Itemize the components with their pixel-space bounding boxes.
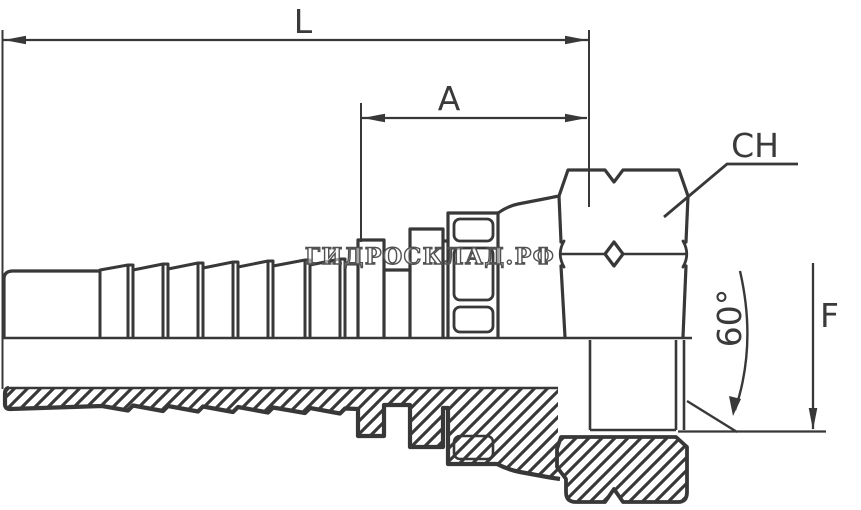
arrow-L-right — [565, 36, 587, 45]
nut-section-hatch — [557, 437, 687, 502]
label-F: F — [820, 296, 839, 335]
socket-block — [448, 213, 498, 337]
arrow-A-left — [363, 114, 385, 123]
arrow-F — [809, 408, 818, 430]
dimension-F: F — [678, 263, 839, 432]
label-L: L — [294, 2, 313, 41]
dimension-A: A — [361, 79, 587, 242]
technical-drawing: L A CH 60° F ГИДРОСКЛАД.РФ — [0, 0, 861, 510]
tail-pilot — [4, 271, 100, 337]
watermark-text: ГИДРОСКЛАД.РФ — [305, 244, 555, 270]
hex-nut — [559, 170, 688, 337]
arrow-angle — [729, 396, 741, 416]
label-A: A — [438, 79, 461, 118]
barb-serrations — [100, 259, 358, 337]
section-hatch — [5, 388, 687, 502]
cone-transition — [498, 196, 559, 213]
cone-construction-line — [687, 401, 737, 432]
dimension-L: L — [3, 2, 590, 389]
arrow-L-left — [4, 36, 26, 45]
arrow-A-right — [565, 114, 587, 123]
leader-line-CH — [664, 164, 798, 217]
label-cone-angle: 60° — [710, 289, 749, 348]
socket-ring-3 — [454, 307, 493, 332]
dimension-cone-angle: 60° — [687, 271, 749, 432]
callout-CH: CH — [664, 126, 798, 217]
hex-chamfer-diamond — [605, 242, 623, 266]
socket-ring-1 — [454, 219, 493, 241]
fitting-drawing-canvas: L A CH 60° F ГИДРОСКЛАД.РФ — [0, 0, 861, 510]
label-CH: CH — [731, 126, 779, 165]
bore-lines — [9, 340, 684, 430]
